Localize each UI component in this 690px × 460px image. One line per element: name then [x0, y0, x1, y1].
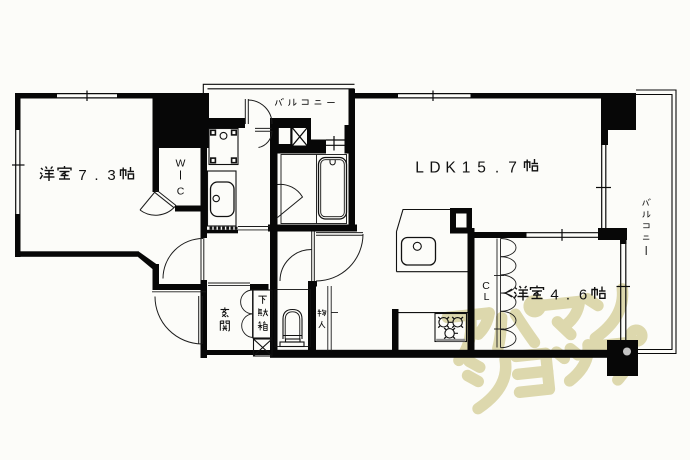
svg-text:L: L	[484, 291, 490, 303]
svg-text:D: D	[429, 160, 440, 177]
svg-text:W: W	[176, 158, 186, 170]
svg-text:3: 3	[107, 167, 115, 184]
svg-text:C: C	[177, 186, 185, 198]
svg-text:K: K	[445, 160, 456, 177]
svg-text:7: 7	[508, 160, 517, 177]
svg-text:6: 6	[579, 287, 587, 304]
svg-text:.: .	[566, 287, 570, 304]
svg-text:7: 7	[78, 167, 86, 184]
svg-text:.: .	[495, 160, 499, 177]
svg-text:5: 5	[477, 160, 486, 177]
svg-text:1: 1	[462, 160, 471, 177]
svg-text:L: L	[415, 160, 424, 177]
svg-text:4: 4	[550, 287, 558, 304]
svg-text:.: .	[94, 167, 98, 184]
